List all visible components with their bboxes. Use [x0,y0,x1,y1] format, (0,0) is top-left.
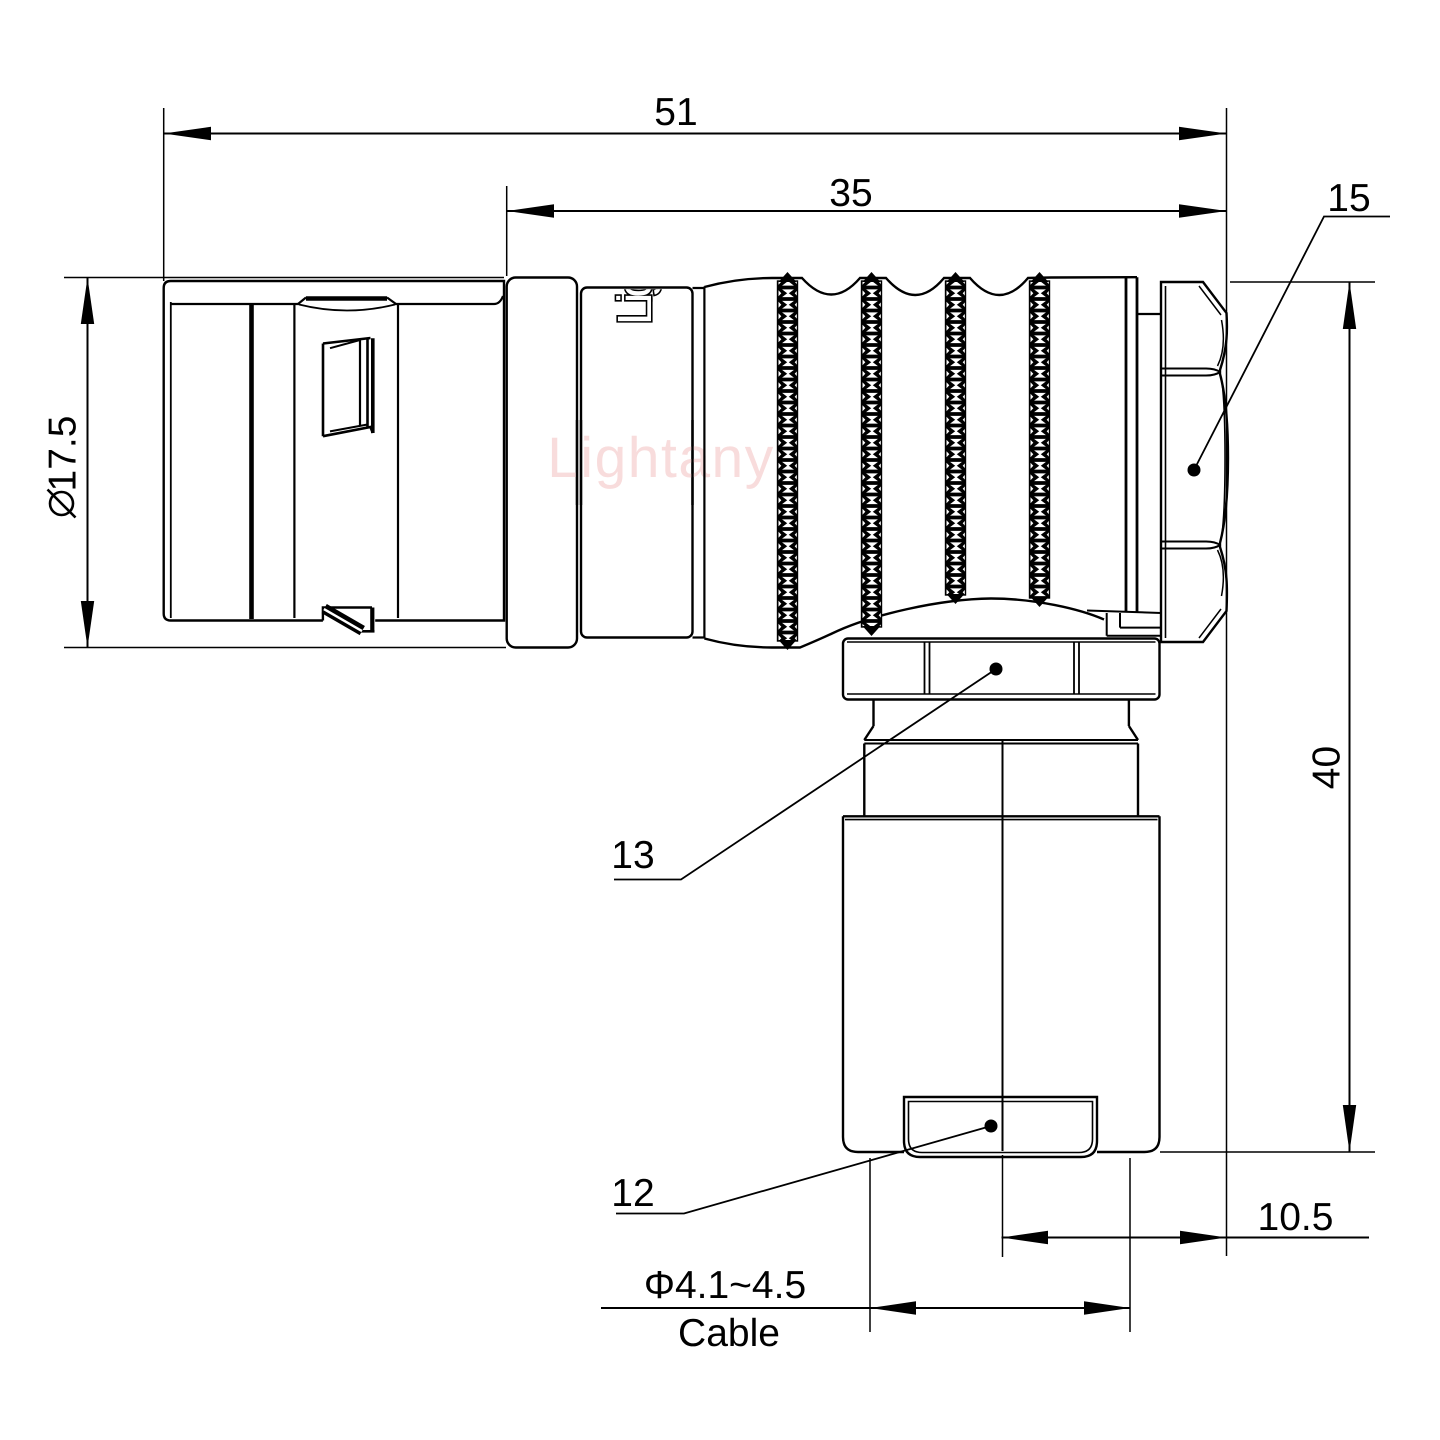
svg-text:35: 35 [829,172,872,215]
svg-text:15: 15 [1327,177,1370,220]
svg-text:17.5: 17.5 [42,416,85,492]
svg-text:10.5: 10.5 [1258,1196,1334,1239]
svg-text:40: 40 [1306,746,1349,789]
svg-text:12: 12 [611,1172,654,1215]
svg-text:13: 13 [611,834,654,877]
svg-text:51: 51 [654,91,697,134]
svg-text:Cable: Cable [678,1312,780,1355]
svg-text:Φ4.1~4.5: Φ4.1~4.5 [644,1264,806,1307]
